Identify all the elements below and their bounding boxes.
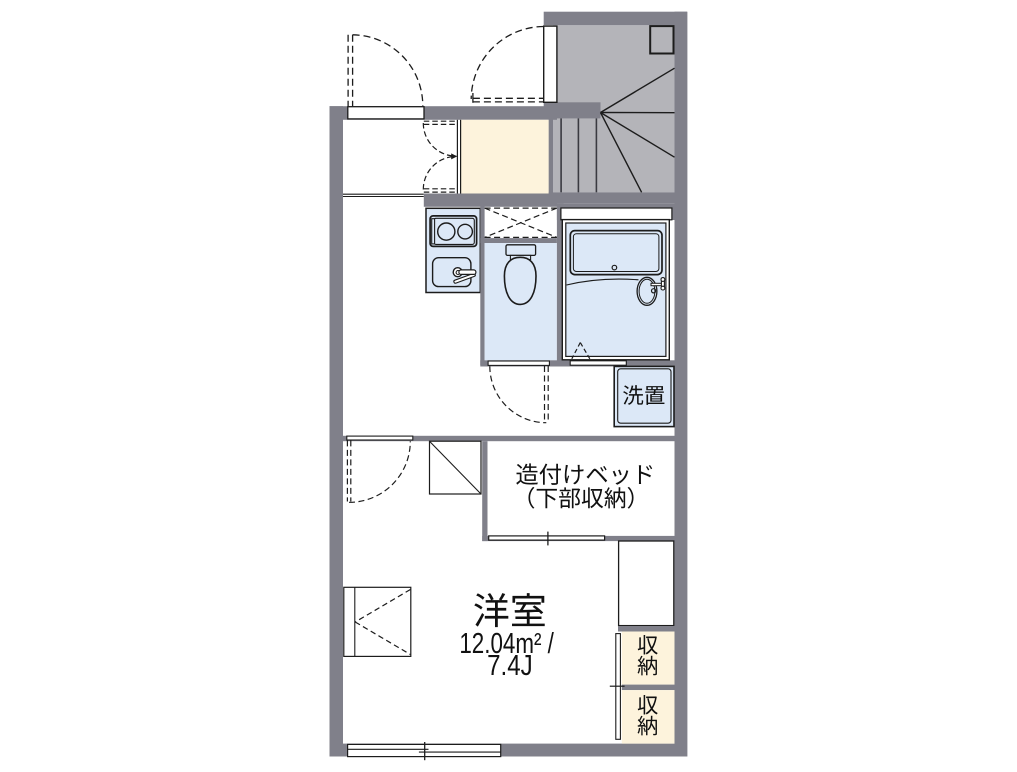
- svg-text:7.4J: 7.4J: [487, 650, 533, 682]
